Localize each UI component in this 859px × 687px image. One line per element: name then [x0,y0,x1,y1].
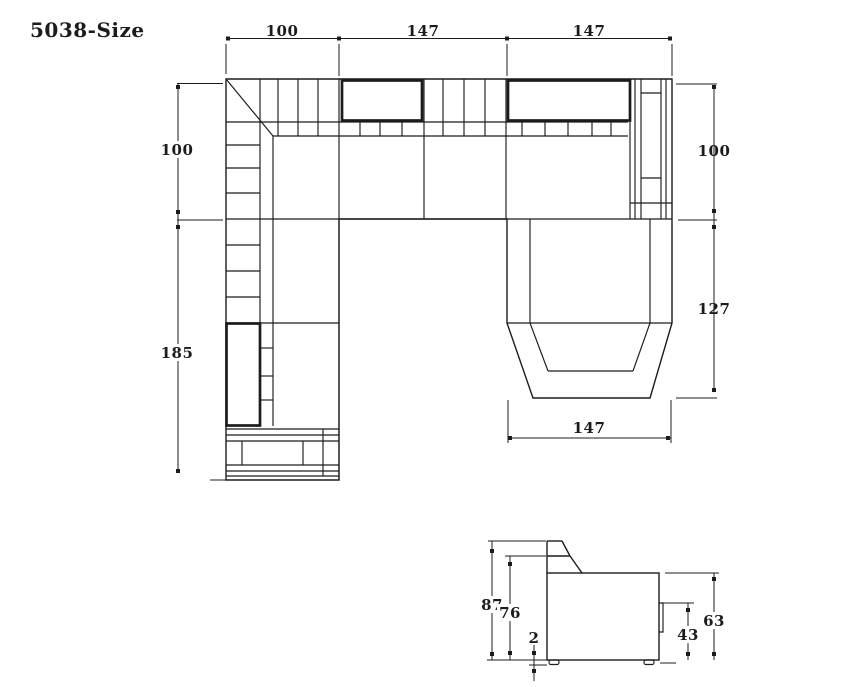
back-cushion-right [508,81,630,121]
dim-label-top-right: 147 [573,22,606,40]
left-arm-rungs [226,145,339,400]
technical-drawing: 100 147 147 100 185 100 127 [0,0,859,687]
dim-label-back-height: 76 [499,604,521,622]
dim-label-left-upper: 100 [161,141,194,159]
structural-verticals [260,79,506,480]
dim-label-left-lower: 185 [161,344,194,362]
dimension-top: 100 147 147 [226,22,672,76]
dim-label-right-upper: 100 [698,142,731,160]
side-cushion [227,324,261,426]
side-backrest [547,541,582,573]
chaise-structure [507,219,672,371]
dim-label-arm-height: 43 [677,626,699,644]
front-rail-bands [226,429,339,476]
side-body [547,573,659,660]
dimension-left: 100 185 [161,84,228,481]
dim-label-leg-height: 2 [529,629,540,647]
dimension-chaise: 147 [508,400,671,443]
dim-label-body-height: 63 [703,612,725,630]
drawing-canvas: 100 147 147 100 185 100 127 [0,0,859,687]
dim-label-chaise-width: 147 [573,419,606,437]
side-view [547,541,663,665]
corner-miter-line [226,79,273,136]
dim-label-right-chaise: 127 [698,300,731,318]
right-arm-structure [630,79,672,219]
back-rail-dividers [278,79,485,136]
dim-label-top-left: 100 [266,22,299,40]
drawing-title: 5038-Size [30,18,145,42]
back-cushion-left [342,81,422,121]
dimension-right: 100 127 [676,84,730,398]
dim-label-top-mid: 147 [407,22,440,40]
